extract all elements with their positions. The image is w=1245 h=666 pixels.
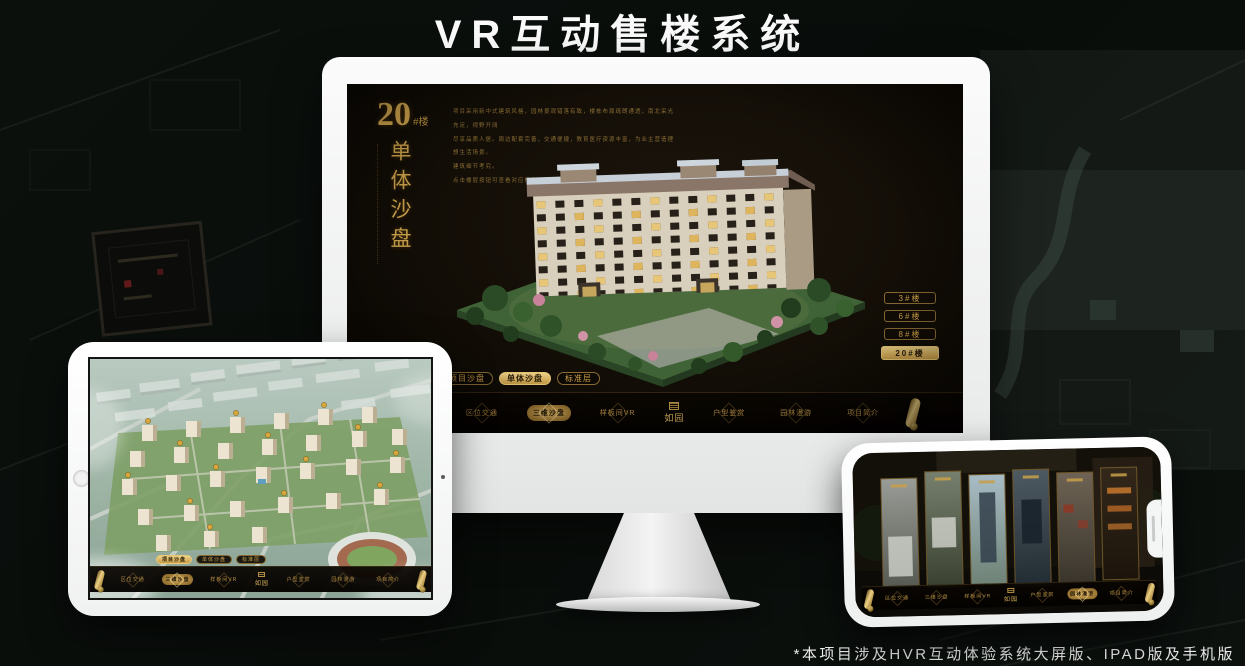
ipad-nav-bar: 区位交通 三维沙盘 样板间VR 如园 户型鉴赏 园林漫游 项目简介	[90, 566, 431, 592]
nav-item-showroom-vr[interactable]: 样板间VR	[594, 405, 642, 421]
floor-button-3[interactable]: 3#楼	[884, 292, 936, 304]
description-line: 项目采用新中式建筑风格，园林景观错落有致，楼栋布局疏朗通透，南北采光充足，视野开…	[453, 106, 678, 134]
tab-standard-floor[interactable]: 标准层	[557, 372, 600, 385]
promo-composite: VR互动售楼系统 *本项目涉及HVR互动体验系统大屏版、IPAD版及手机版 20…	[0, 0, 1245, 666]
phone-app-screen: 区位交通 三维沙盘 样板间VR 如园 户型鉴赏 园林漫游 项目简介	[852, 447, 1164, 618]
monitor-base	[556, 597, 760, 612]
scroll-icon[interactable]	[863, 588, 874, 609]
nav-item-showroom-vr[interactable]: 样板间VR	[961, 590, 994, 602]
brand-logo-text: 如园	[255, 578, 269, 587]
ipad-mode-tab-bar: 项目沙盘 单体沙盘 标准层	[156, 555, 270, 564]
nav-item-3d-sandbox[interactable]: 三维沙盘	[527, 405, 571, 421]
speaker-icon	[1152, 516, 1156, 542]
floor-button-20[interactable]: 20#楼	[881, 346, 939, 360]
building-number: 20	[377, 96, 411, 133]
section-title-vertical: 单体沙盘	[385, 140, 415, 310]
building-3d-render[interactable]	[447, 140, 871, 392]
brand-logo-text: 如园	[1004, 594, 1018, 603]
tab-project-sandbox[interactable]: 项目沙盘	[156, 555, 192, 564]
mode-tab-bar: 项目沙盘 单体沙盘 标准层	[441, 372, 606, 385]
brand-logo: 如园	[1004, 588, 1018, 603]
building-number-suffix: #楼	[413, 117, 429, 128]
scroll-icon[interactable]	[905, 397, 922, 429]
nav-item-floorplans[interactable]: 户型鉴赏	[1027, 589, 1057, 601]
tab-single-sandbox[interactable]: 单体沙盘	[499, 372, 551, 385]
seal-icon	[258, 572, 265, 577]
nav-item-location[interactable]: 区位交通	[882, 592, 912, 604]
nav-item-project-info[interactable]: 项目简介	[1107, 587, 1137, 599]
nav-item-location[interactable]: 区位交通	[460, 405, 504, 421]
nav-item-garden-tour[interactable]: 园林漫游	[328, 574, 358, 585]
floor-button-8[interactable]: 8#楼	[884, 328, 936, 340]
phone-mockup: 区位交通 三维沙盘 样板间VR 如园 户型鉴赏 园林漫游 项目简介	[841, 436, 1175, 627]
ipad-mockup: 项目沙盘 单体沙盘 标准层 区位交通 三维沙盘 样板间VR 如园 户型鉴赏 园林…	[68, 342, 452, 616]
nav-item-floorplans[interactable]: 户型鉴赏	[284, 574, 314, 585]
ipad-app-screen: 项目沙盘 单体沙盘 标准层 区位交通 三维沙盘 样板间VR 如园 户型鉴赏 园林…	[88, 357, 433, 600]
nav-item-location[interactable]: 区位交通	[118, 574, 148, 585]
scroll-icon[interactable]	[416, 569, 428, 590]
nav-item-garden-tour[interactable]: 园林漫游	[1067, 588, 1097, 600]
nav-item-floorplans[interactable]: 户型鉴赏	[707, 405, 751, 421]
page-title: VR互动售楼系统	[0, 2, 1245, 60]
tab-standard-floor[interactable]: 标准层	[236, 555, 266, 564]
nav-item-showroom-vr[interactable]: 样板间VR	[207, 574, 240, 585]
footnote-text: *本项目涉及HVR互动体验系统大屏版、IPAD版及手机版	[794, 643, 1235, 664]
seal-icon	[669, 402, 679, 410]
nav-item-garden-tour[interactable]: 园林漫游	[774, 405, 818, 421]
building-heading: 20#楼	[377, 96, 429, 134]
nav-item-3d-sandbox[interactable]: 三维沙盘	[922, 591, 952, 603]
brand-logo: 如园	[255, 572, 269, 587]
seal-icon	[1007, 588, 1014, 593]
phone-notch	[1146, 500, 1162, 558]
brand-logo-text: 如园	[664, 411, 684, 424]
nav-item-3d-sandbox[interactable]: 三维沙盘	[162, 574, 192, 585]
scroll-icon[interactable]	[94, 569, 106, 590]
brand-logo: 如园	[664, 402, 684, 424]
nav-item-project-info[interactable]: 项目简介	[841, 405, 885, 421]
floor-button-group: 3#楼 6#楼 8#楼 20#楼	[881, 292, 939, 360]
nav-item-project-info[interactable]: 项目简介	[373, 574, 403, 585]
camera-icon	[441, 475, 445, 479]
scroll-icon[interactable]	[1144, 582, 1155, 603]
floor-button-6[interactable]: 6#楼	[884, 310, 936, 322]
tab-single-sandbox[interactable]: 单体沙盘	[196, 555, 232, 564]
